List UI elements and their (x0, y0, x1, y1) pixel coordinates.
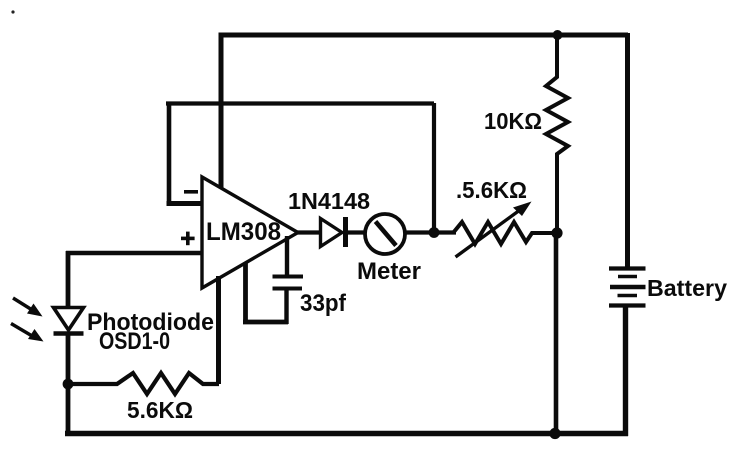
svg-text:5.6KΩ: 5.6KΩ (127, 397, 193, 423)
svg-text:33pf: 33pf (300, 290, 347, 317)
svg-text:Meter: Meter (357, 258, 421, 285)
svg-text:.5.6KΩ: .5.6KΩ (456, 177, 527, 203)
svg-text:LM308: LM308 (206, 218, 281, 246)
svg-text:Battery: Battery (647, 275, 727, 301)
svg-text:OSD1-0: OSD1-0 (99, 328, 170, 355)
svg-text:10KΩ: 10KΩ (484, 108, 542, 134)
svg-text:1N4148: 1N4148 (288, 188, 370, 214)
